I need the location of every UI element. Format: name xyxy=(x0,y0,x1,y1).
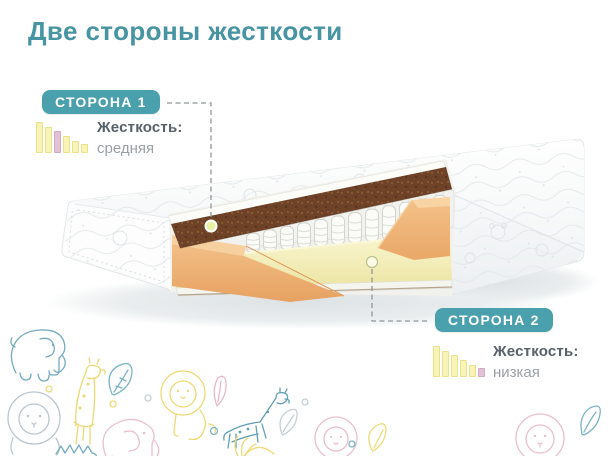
side2-firmness-label: Жесткость: xyxy=(493,343,579,360)
leaf-icon xyxy=(109,364,132,395)
side1-firmness-label: Жесткость: xyxy=(97,119,183,136)
firmness-bar xyxy=(433,346,440,377)
firmness-bar xyxy=(81,144,88,153)
leaf-icon xyxy=(581,406,600,435)
firmness-bar xyxy=(54,131,61,153)
side2-marker-dot xyxy=(367,257,378,268)
side1-marker-dot xyxy=(206,221,217,232)
side2-badge: СТОРОНА 2 xyxy=(435,308,553,332)
elephant-icon xyxy=(11,330,65,381)
elephant-icon xyxy=(103,419,159,456)
leaf-icon xyxy=(369,424,386,451)
firmness-bar xyxy=(469,365,476,377)
mattress-illustration xyxy=(0,0,608,456)
firmness-bar xyxy=(45,127,52,153)
giraffe-icon xyxy=(224,388,289,448)
side1-firmness-scale-icon xyxy=(36,122,94,153)
decorative-dots xyxy=(46,386,355,447)
firmness-bar xyxy=(72,141,79,153)
firmness-bar xyxy=(36,122,43,153)
firmness-bar xyxy=(478,368,485,377)
leaf-icon xyxy=(214,376,226,406)
infographic-two-firmness-sides: Две стороны жесткости СТОРОНА 1 Жесткост… xyxy=(0,0,608,456)
firmness-bar xyxy=(63,136,70,153)
firmness-bar xyxy=(460,360,467,377)
side2-firmness-value: низкая xyxy=(493,364,540,381)
lion-icon xyxy=(315,417,357,456)
animal-ear-arc xyxy=(244,447,274,456)
firmness-bar xyxy=(442,351,449,377)
lion-icon xyxy=(161,371,215,439)
firmness-bar xyxy=(451,355,458,377)
leaf-icon xyxy=(280,409,297,435)
side1-badge: СТОРОНА 1 xyxy=(42,90,160,114)
lion-icon xyxy=(8,392,60,455)
side2-firmness-scale-icon xyxy=(433,346,491,377)
hedgehog-icon xyxy=(56,445,97,456)
giraffe-icon xyxy=(74,358,105,444)
side1-firmness-value: средняя xyxy=(97,140,154,157)
lion-icon xyxy=(516,414,564,456)
page-title: Две стороны жесткости xyxy=(28,16,343,47)
